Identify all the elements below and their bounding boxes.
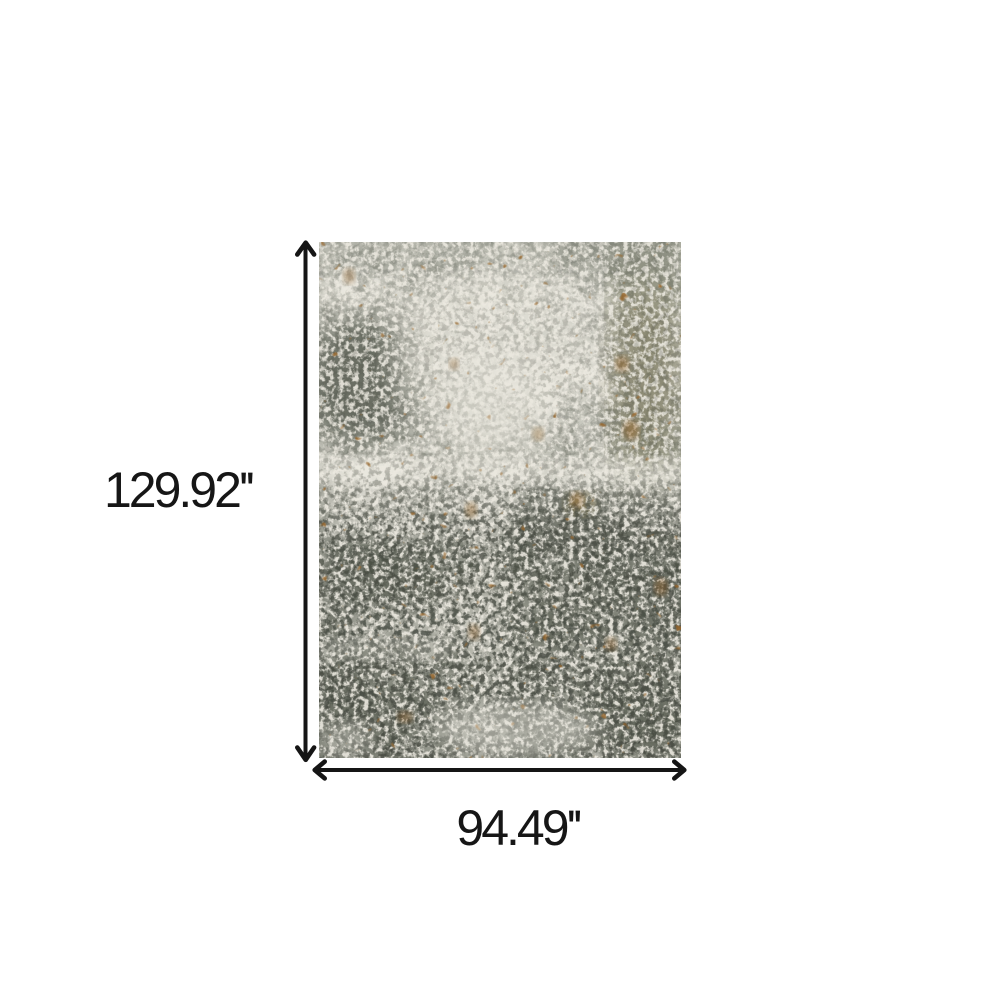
svg-text:94.49'': 94.49'' xyxy=(456,800,581,856)
svg-text:129.92'': 129.92'' xyxy=(104,462,253,518)
